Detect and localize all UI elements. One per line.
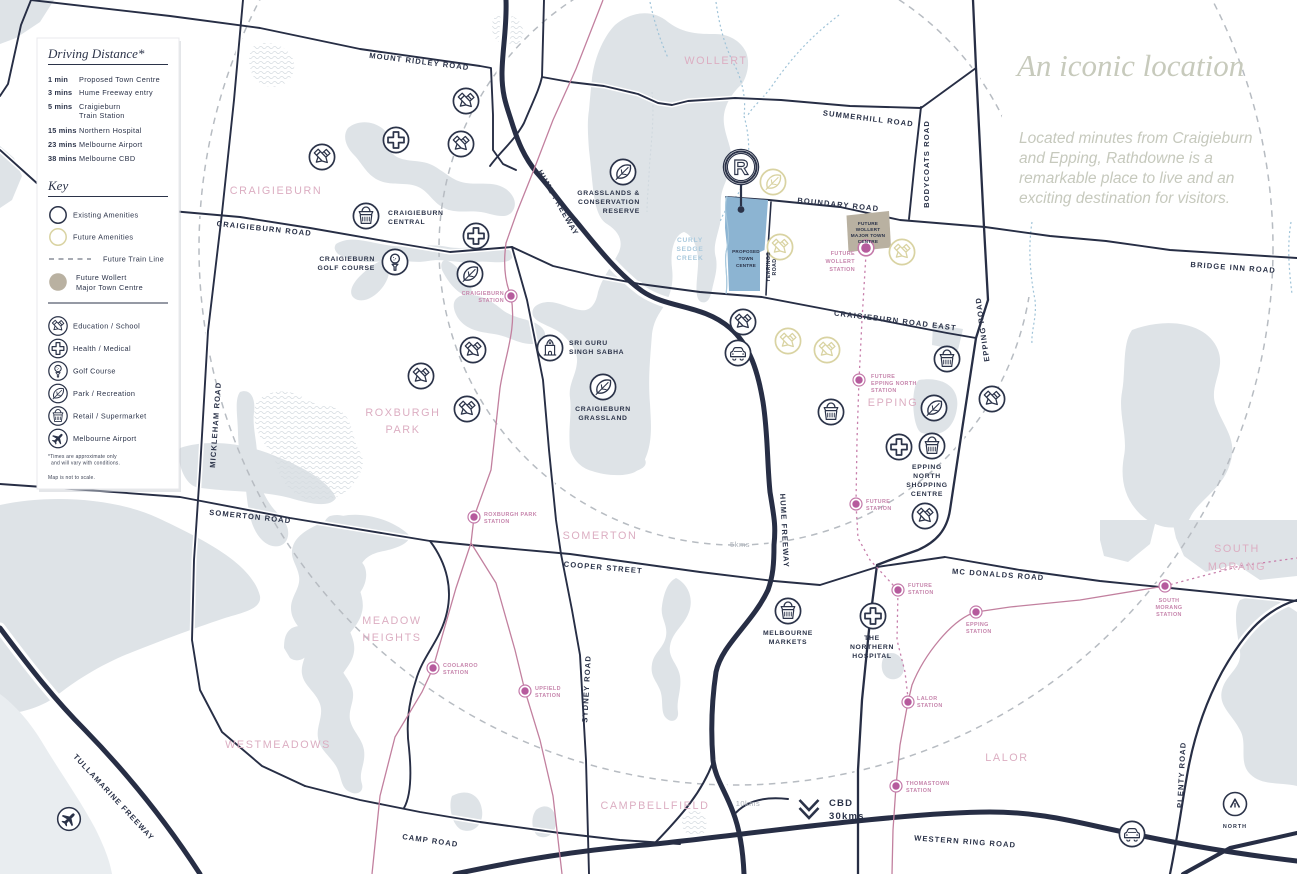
svg-text:3 mins: 3 mins — [48, 88, 72, 97]
svg-text:38 mins: 38 mins — [48, 154, 77, 163]
svg-text:PARK: PARK — [386, 424, 421, 436]
svg-text:Proposed Town Centre: Proposed Town Centre — [79, 75, 160, 84]
svg-text:CENTRE: CENTRE — [911, 491, 943, 498]
svg-text:FUTURE: FUTURE — [858, 221, 878, 226]
svg-text:HEIGHTS: HEIGHTS — [362, 632, 421, 644]
svg-text:Retail / Supermarket: Retail / Supermarket — [73, 412, 147, 421]
svg-text:MARKETS: MARKETS — [769, 639, 808, 646]
svg-text:CENTRAL: CENTRAL — [388, 219, 425, 226]
svg-text:MELBOURNE: MELBOURNE — [763, 630, 813, 637]
svg-text:CAMPBELLFIELD: CAMPBELLFIELD — [600, 800, 709, 812]
svg-text:CREEK: CREEK — [676, 255, 703, 262]
svg-text:Future Train Line: Future Train Line — [103, 255, 164, 264]
svg-text:15 mins: 15 mins — [48, 126, 77, 135]
svg-text:Melbourne Airport: Melbourne Airport — [79, 140, 143, 149]
svg-text:HOSPITAL: HOSPITAL — [852, 653, 891, 660]
svg-text:MORANG: MORANG — [1156, 605, 1183, 611]
svg-text:SINGH SABHA: SINGH SABHA — [569, 349, 624, 356]
svg-text:CRAIGIEBURN: CRAIGIEBURN — [462, 291, 504, 297]
svg-text:An iconic location: An iconic location — [1015, 48, 1244, 83]
svg-text:Hume Freeway entry: Hume Freeway entry — [79, 88, 153, 97]
svg-text:LALOR: LALOR — [985, 752, 1028, 764]
svg-text:CENTRE: CENTRE — [858, 239, 878, 244]
svg-text:EPPING: EPPING — [966, 622, 989, 628]
svg-text:Craigieburn: Craigieburn — [79, 102, 121, 111]
svg-text:STATION: STATION — [908, 590, 934, 596]
svg-text:THE: THE — [864, 635, 880, 642]
svg-text:CURLY: CURLY — [677, 237, 703, 244]
svg-text:FUTURE: FUTURE — [871, 374, 895, 380]
svg-text:Key: Key — [47, 178, 68, 193]
svg-text:FUTURE: FUTURE — [908, 583, 932, 589]
svg-text:GRASSLANDS &: GRASSLANDS & — [577, 190, 640, 197]
svg-text:BODYCOATS ROAD: BODYCOATS ROAD — [922, 120, 931, 208]
svg-text:and Epping, Rathdowne is a: and Epping, Rathdowne is a — [1019, 150, 1213, 167]
svg-text:10kms: 10kms — [736, 799, 761, 808]
svg-text:THOMASTOWN: THOMASTOWN — [906, 781, 950, 787]
svg-text:Park / Recreation: Park / Recreation — [73, 389, 135, 398]
svg-text:STATION: STATION — [966, 629, 992, 635]
svg-text:GRASSLAND: GRASSLAND — [578, 415, 627, 422]
svg-text:STATION: STATION — [1156, 612, 1182, 618]
svg-text:Northern Hospital: Northern Hospital — [79, 126, 142, 135]
svg-text:FUTURE: FUTURE — [866, 499, 890, 505]
svg-text:RESERVE: RESERVE — [603, 208, 640, 215]
svg-text:EPPING NORTH: EPPING NORTH — [871, 381, 917, 387]
svg-text:SHOPPING: SHOPPING — [906, 482, 947, 489]
svg-text:STATION: STATION — [443, 670, 469, 676]
svg-text:FUTURE: FUTURE — [831, 251, 855, 257]
svg-text:ROAD: ROAD — [772, 259, 778, 276]
svg-text:Located minutes from Craigiebu: Located minutes from Craigieburn — [1019, 130, 1252, 147]
svg-text:Health / Medical: Health / Medical — [73, 344, 131, 353]
svg-text:CONSERVATION: CONSERVATION — [578, 199, 640, 206]
svg-text:1 min: 1 min — [48, 75, 68, 84]
svg-text:CRAIGIEBURN: CRAIGIEBURN — [575, 406, 631, 413]
svg-text:MORANG: MORANG — [1208, 561, 1266, 573]
svg-text:EPPING: EPPING — [912, 464, 942, 471]
svg-text:NORTH: NORTH — [913, 473, 941, 480]
svg-text:Driving Distance*: Driving Distance* — [47, 46, 145, 61]
svg-text:Melbourne CBD: Melbourne CBD — [79, 154, 135, 163]
svg-text:MEADOW: MEADOW — [362, 615, 421, 627]
svg-text:COOLAROO: COOLAROO — [443, 663, 478, 669]
svg-text:Melbourne Airport: Melbourne Airport — [73, 434, 137, 443]
svg-text:Major Town Centre: Major Town Centre — [76, 283, 143, 292]
svg-text:STATION: STATION — [484, 519, 510, 525]
svg-text:SRI GURU: SRI GURU — [569, 340, 608, 347]
svg-text:and will vary with conditions.: and will vary with conditions. — [51, 461, 120, 467]
svg-text:30kms: 30kms — [829, 811, 865, 822]
svg-text:STATION: STATION — [917, 703, 943, 709]
svg-text:STATION: STATION — [906, 788, 932, 794]
svg-text:Education / School: Education / School — [73, 322, 140, 331]
svg-text:Map is not to scale.: Map is not to scale. — [48, 475, 95, 481]
svg-text:exciting destination for visit: exciting destination for visitors. — [1019, 190, 1230, 207]
svg-text:NORTHERN: NORTHERN — [850, 644, 894, 651]
svg-text:UPFIELD: UPFIELD — [535, 686, 561, 692]
svg-text:R: R — [733, 157, 748, 180]
svg-text:*Times are approximate only: *Times are approximate only — [48, 454, 117, 460]
svg-text:CRAIGIEBURN: CRAIGIEBURN — [230, 185, 323, 197]
svg-text:CRAIGIEBURN: CRAIGIEBURN — [319, 256, 375, 263]
svg-text:STATION: STATION — [829, 267, 855, 273]
svg-text:STATION: STATION — [871, 388, 897, 394]
svg-text:SOMERTON: SOMERTON — [563, 530, 638, 542]
svg-text:STATION: STATION — [866, 506, 892, 512]
svg-text:EPPING: EPPING — [868, 397, 918, 409]
svg-text:CRAIGIEBURN: CRAIGIEBURN — [388, 210, 444, 217]
svg-text:Golf Course: Golf Course — [73, 367, 116, 376]
svg-text:Train Station: Train Station — [79, 111, 125, 120]
svg-text:PROPOSED: PROPOSED — [732, 249, 760, 254]
svg-text:Future Wollert: Future Wollert — [76, 273, 127, 282]
svg-text:GOLF COURSE: GOLF COURSE — [317, 265, 375, 272]
svg-text:STATION: STATION — [478, 298, 504, 304]
svg-text:WOLLERT: WOLLERT — [856, 227, 881, 232]
svg-text:WOLLERT: WOLLERT — [826, 259, 856, 265]
svg-text:remarkable place to live and a: remarkable place to live and an — [1019, 170, 1234, 187]
svg-text:SOUTH: SOUTH — [1214, 543, 1260, 555]
svg-text:CENTRE: CENTRE — [736, 263, 756, 268]
svg-text:ROXBURGH: ROXBURGH — [365, 407, 440, 419]
svg-text:CBD: CBD — [829, 798, 853, 809]
svg-text:WOLLERT: WOLLERT — [684, 55, 747, 67]
svg-text:Future Amenities: Future Amenities — [73, 233, 133, 242]
svg-text:5 mins: 5 mins — [48, 102, 72, 111]
svg-text:WESTMEADOWS: WESTMEADOWS — [225, 739, 331, 751]
svg-text:Existing Amenities: Existing Amenities — [73, 211, 139, 220]
svg-text:23 mins: 23 mins — [48, 140, 77, 149]
svg-text:5kms: 5kms — [730, 540, 750, 549]
svg-text:STATION: STATION — [535, 693, 561, 699]
svg-text:NORTH: NORTH — [1223, 824, 1247, 830]
svg-text:TOWN: TOWN — [739, 256, 754, 261]
svg-text:MAJOR TOWN: MAJOR TOWN — [851, 233, 886, 238]
svg-text:LALOR: LALOR — [917, 696, 938, 702]
svg-text:SEDGE: SEDGE — [676, 246, 703, 253]
svg-text:SOUTH: SOUTH — [1159, 598, 1180, 604]
svg-text:ROXBURGH PARK: ROXBURGH PARK — [484, 512, 537, 518]
